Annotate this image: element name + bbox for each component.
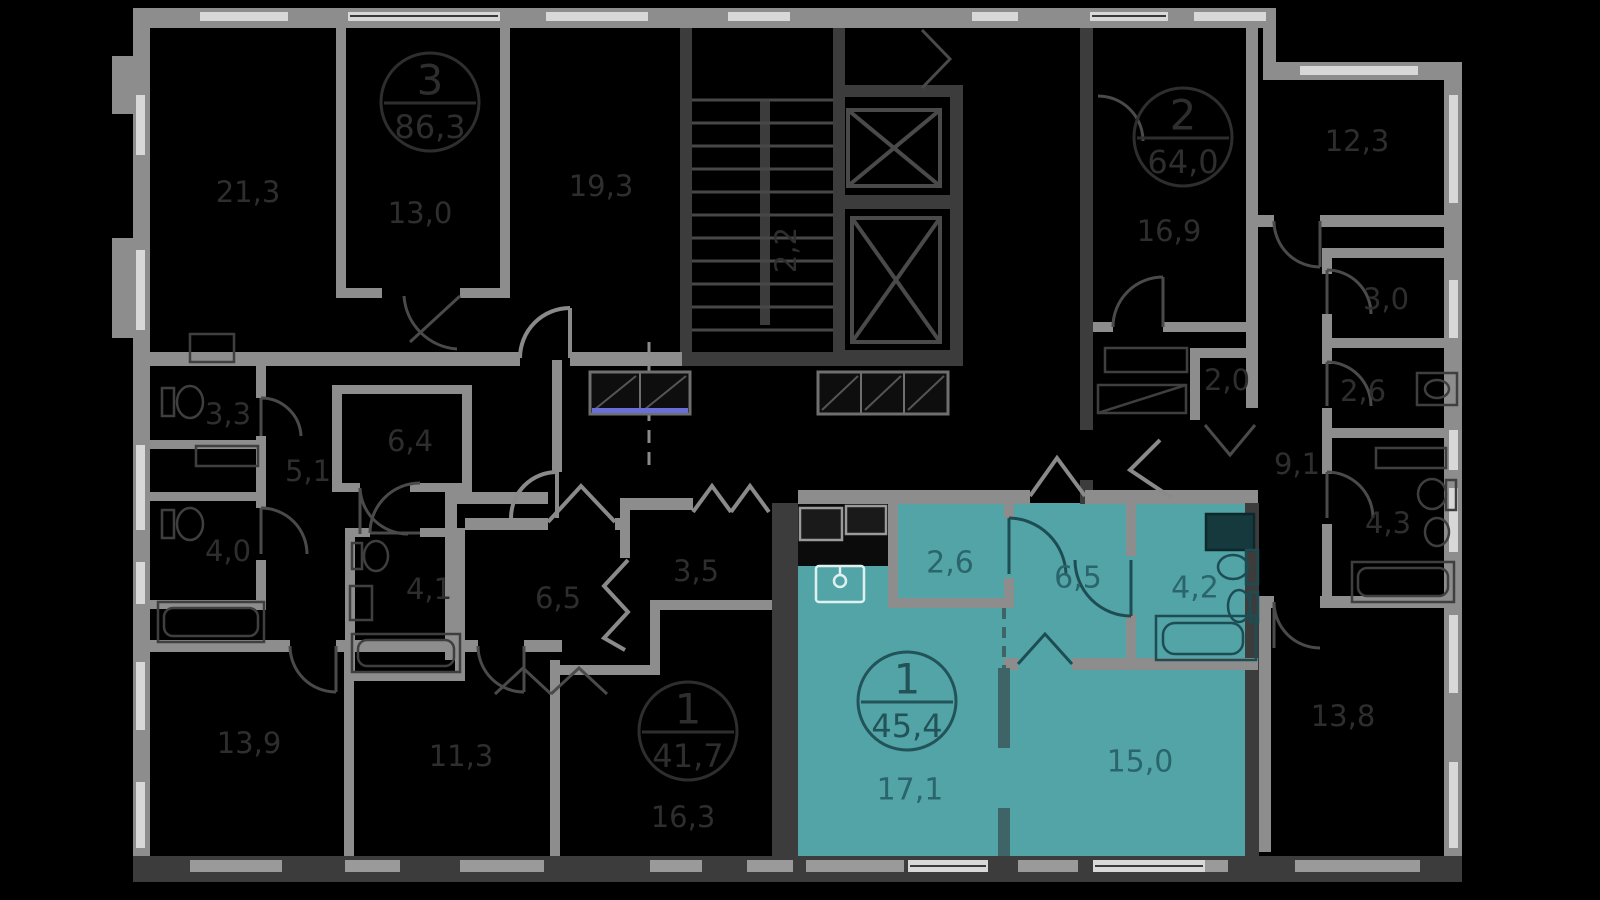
apartment-1room-45-selected[interactable]: 2,6 6,5 4,2 17,1 15,0 1 45,4 [798,490,1258,856]
room-area-label: 12,3 [1325,124,1390,158]
floor-plan-viewer: 2,2 [0,0,1600,900]
room-area-label: 6,5 [1054,561,1102,596]
room-area-label: 2,6 [1340,374,1386,408]
room-area-label: 4,3 [1365,506,1411,540]
room-area-label: 2,0 [1204,363,1250,397]
svg-text:45,4: 45,4 [871,707,942,745]
glass-panel [592,408,688,413]
apartment-45-badge: 1 45,4 [858,652,956,750]
stair-stringer [760,100,770,325]
svg-text:86,3: 86,3 [394,108,465,146]
apartment-86-badge: 3 86,3 [381,53,479,151]
svg-text:1: 1 [675,685,702,734]
svg-text:2: 2 [1170,91,1197,140]
balcony-tab [112,238,133,338]
stair-wall [680,28,692,366]
room-area-label: 9,1 [1274,447,1320,481]
room-area-label: 16,9 [1137,214,1202,248]
room-area-label: 4,2 [1171,571,1219,606]
room-area-label: 13,0 [388,196,453,230]
room-area-label: 17,1 [877,773,944,808]
room-area-label: 4,1 [406,572,452,606]
balcony-tab [112,56,133,114]
floor-plan-canvas: 2,2 [0,0,1600,900]
room-area-label: 4,0 [205,534,251,568]
svg-text:3: 3 [417,56,444,105]
room-area-label: 6,4 [387,424,433,458]
room-area-label: 15,0 [1107,745,1174,780]
svg-text:41,7: 41,7 [652,737,723,775]
room-area-label: 3,3 [205,397,251,431]
room-area-label: 2,6 [926,546,974,581]
room-area-label: 19,3 [569,169,634,203]
svg-text:64,0: 64,0 [1147,143,1218,181]
apartment-41-badge: 1 41,7 [639,682,737,780]
room-area-label: 16,3 [651,800,716,834]
room-area-label: 3,0 [1363,282,1409,316]
svg-text:1: 1 [894,655,921,704]
stairs-area-label: 2,2 [769,227,803,273]
room-area-label: 13,9 [217,726,282,760]
room-area-label: 11,3 [429,739,494,773]
apartment-64-badge: 2 64,0 [1134,88,1232,186]
room-area-label: 13,8 [1311,699,1376,733]
room-area-label: 3,5 [673,554,719,588]
room-area-label: 21,3 [216,175,281,209]
room-area-label: 5,1 [285,454,331,488]
room-area-label: 6,5 [535,581,581,615]
